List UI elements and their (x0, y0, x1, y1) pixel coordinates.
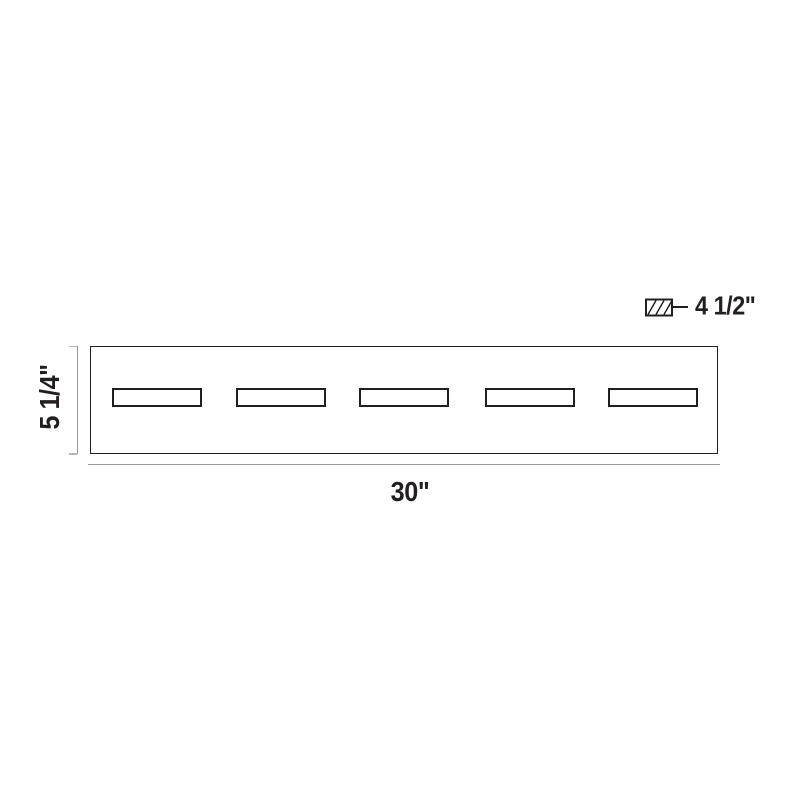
height-dimension-line (77, 346, 79, 454)
lamp-opening (112, 388, 202, 407)
drawing-canvas: 4 1/2" 5 1/4" 30" (0, 0, 800, 800)
lamp-opening (359, 388, 449, 407)
lamp-opening (236, 388, 326, 407)
depth-dimension-label: 4 1/2" (695, 290, 755, 321)
height-dimension-tick-top (69, 346, 77, 348)
lamp-opening (485, 388, 575, 407)
height-dimension-tick-bottom (69, 453, 77, 455)
height-dimension-label: 5 1/4" (34, 364, 66, 429)
width-dimension-line (88, 464, 720, 466)
depth-leader-line (671, 306, 688, 308)
width-dimension-label: 30" (391, 476, 430, 508)
lamp-opening (608, 388, 698, 407)
depth-hatch-swatch-icon (645, 298, 673, 317)
fixture-front-view (90, 346, 718, 454)
